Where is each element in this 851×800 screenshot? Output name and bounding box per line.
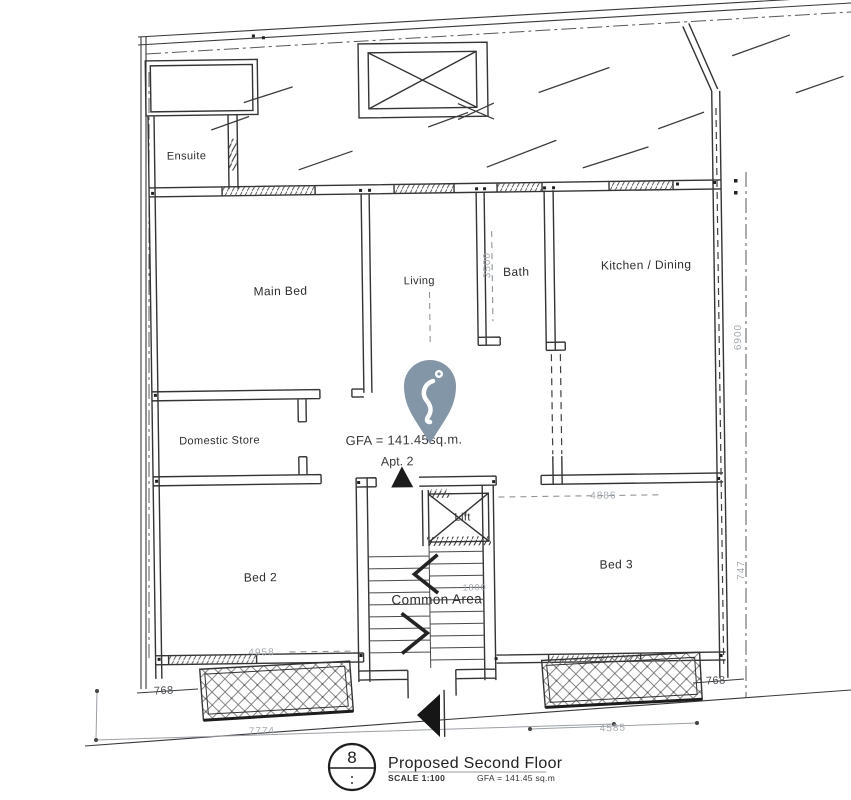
window-living: [394, 184, 454, 193]
dim-dot: [94, 738, 98, 742]
room-label-living: Living: [404, 275, 435, 287]
dim-side-depth: 6900: [733, 324, 744, 350]
dim-bath-depth: 3500: [482, 252, 493, 278]
building-plan: Ensuite Main Bed Living Bath Kitchen / D…: [145, 21, 851, 741]
stair-direction-arrow-up: [414, 556, 437, 592]
dim-dot: [734, 191, 738, 195]
window-mainbed: [222, 186, 315, 195]
wall-bath-kitchen: [544, 190, 567, 484]
dim-front-right: 4585: [600, 723, 627, 735]
dim-stair-width: 1800: [463, 582, 487, 592]
dim-dot: [95, 689, 99, 693]
apartment-annotation: Apt. 2: [381, 454, 414, 468]
sliding-partition-dashed: [551, 354, 561, 454]
junction-dots: [149, 28, 723, 665]
roof-shaft: [358, 42, 488, 118]
pavement-line: [85, 690, 851, 746]
drawing-scale: SCALE 1:100: [388, 773, 445, 783]
dim-dot: [695, 721, 699, 725]
room-label-ensuite: Ensuite: [167, 150, 207, 163]
dim-dot: [734, 179, 738, 183]
dim-bed2-width: 4958: [248, 647, 274, 658]
window-bed2: [169, 655, 257, 664]
floor-plan-canvas: Ensuite Main Bed Living Bath Kitchen / D…: [0, 0, 851, 800]
gfa-annotation: GFA = 141.45sq.m.: [345, 432, 462, 449]
room-label-bed2: Bed 2: [244, 570, 278, 584]
dim-balcony-left-offset: 768: [154, 684, 174, 697]
section-arrow-triangle: [417, 694, 440, 737]
window-bath: [497, 183, 542, 192]
wall-mainbed-living: [349, 194, 372, 397]
room-label-common-area: Common Area: [391, 591, 482, 607]
ensuite-door-hatch: [229, 139, 238, 171]
room-label-main-bed: Main Bed: [253, 284, 307, 299]
site-boundary-top-lines: [138, 0, 851, 45]
entrance-marker-triangle: [391, 466, 413, 487]
right-wall-centerline: [716, 108, 724, 664]
room-label-lift: Lift: [454, 511, 470, 523]
dim-bed3-width: 4886: [590, 490, 616, 501]
window-kitchen: [609, 181, 673, 190]
title-block-dot: [351, 776, 353, 778]
site-boundary: [85, 0, 851, 746]
drawing-number: 8: [347, 748, 356, 767]
site-boundary-left-lines: [141, 37, 146, 689]
pin-glyph-dot-center: [437, 372, 440, 375]
room-label-domestic-store: Domestic Store: [179, 434, 260, 447]
stair-direction-arrow-down: [403, 614, 428, 652]
dim-front-left: 7774: [249, 726, 276, 738]
drawing-gfa: GFA = 141.45 sq.m: [477, 773, 555, 783]
room-label-bed3: Bed 3: [600, 557, 634, 571]
lift-wall-hatch-top: [429, 489, 449, 498]
dim-side-lower: 747: [736, 560, 747, 580]
room-label-kitchen-dining: Kitchen / Dining: [601, 257, 692, 272]
room-label-bath: Bath: [503, 265, 529, 279]
balcony-right: [542, 652, 703, 707]
site-boundary-top-dashdot: [146, 12, 851, 54]
terrace-slope-marks: [210, 34, 845, 173]
lift-wall-hatch-bottom: [427, 536, 491, 546]
title-block: 8 Proposed Second Floor SCALE 1:100 GFA …: [329, 744, 563, 790]
dim-dot: [528, 727, 532, 731]
floor-plan-drawing: Ensuite Main Bed Living Bath Kitchen / D…: [0, 0, 851, 800]
dim-balcony-right-offset: 768: [706, 674, 726, 687]
core-walls: [356, 476, 497, 738]
title-block-dot: [351, 782, 353, 784]
planter-box: [145, 59, 258, 116]
drawing-title: Proposed Second Floor: [388, 755, 563, 772]
balcony-left: [200, 661, 354, 720]
